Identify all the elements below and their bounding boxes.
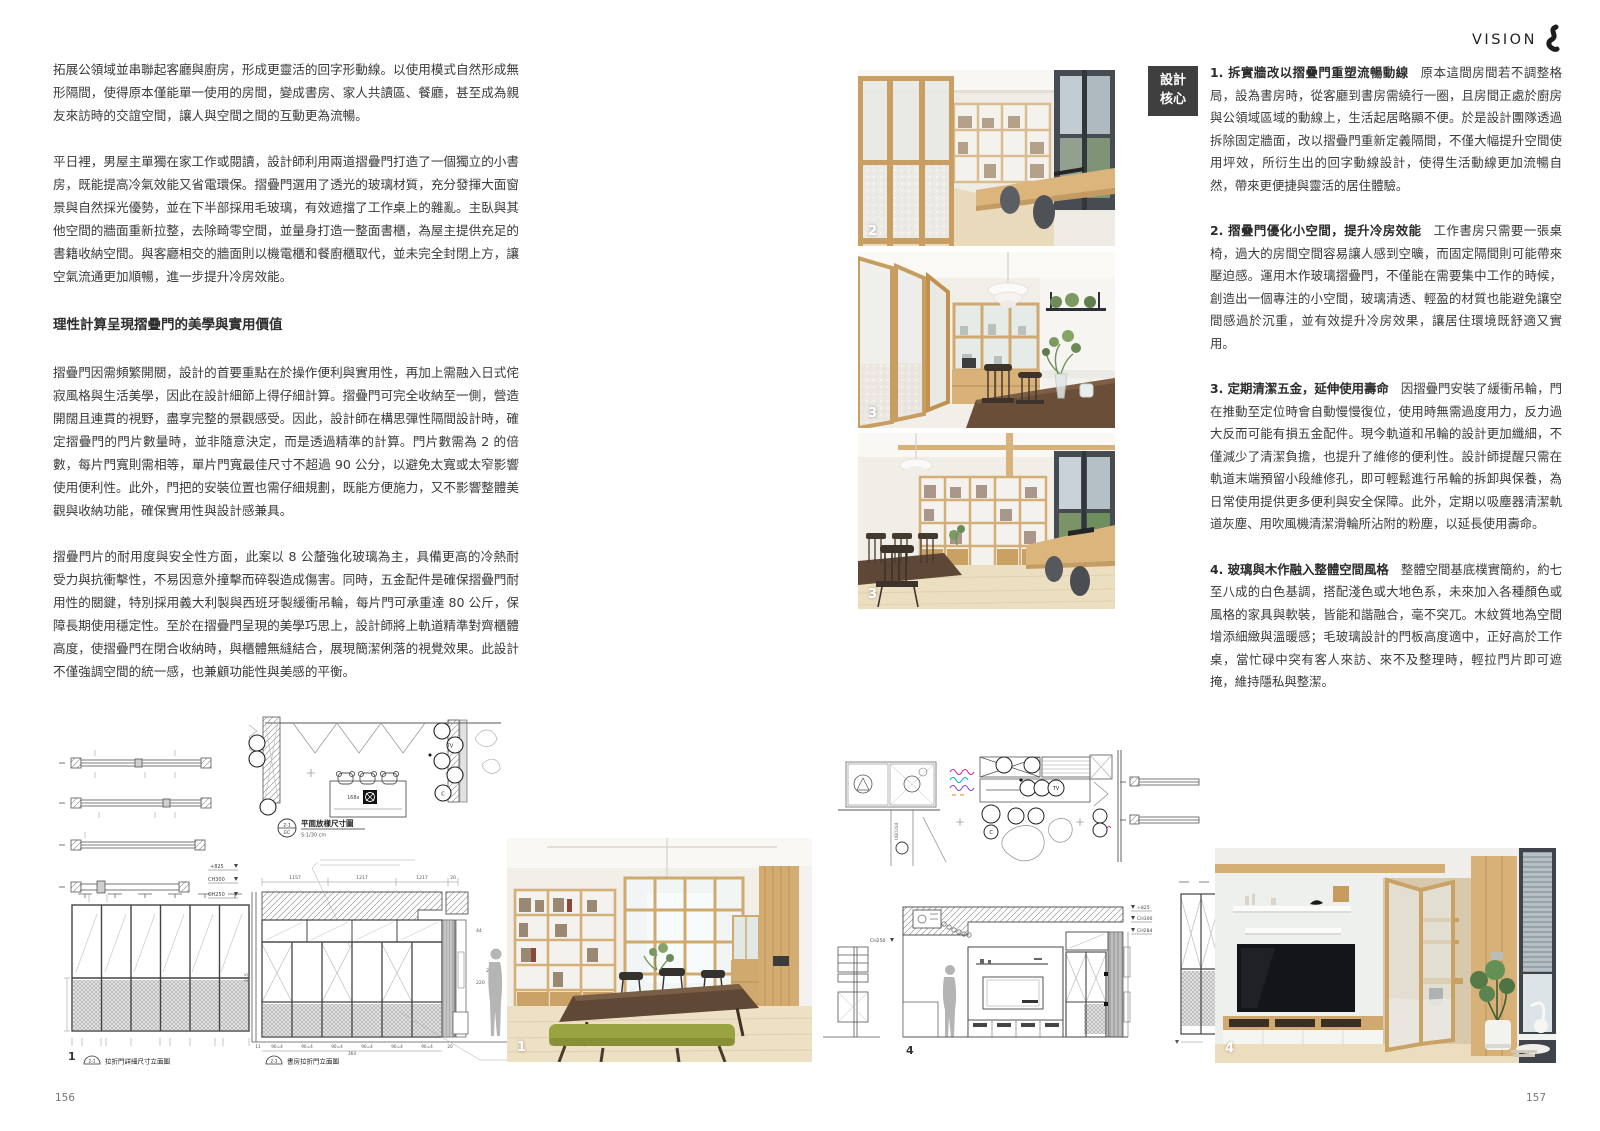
photo-number: 2 [868, 224, 877, 239]
plan-tv-callout: TV [446, 744, 454, 750]
tv-wall-elevation-drawing: CH250 +825 CH300 CH28 [818, 852, 1153, 1062]
svg-text:2-1: 2-1 [283, 823, 291, 829]
design-point-3: 3. 定期清潔五金，延伸使用壽命因摺疊門安裝了緩衝吊輪，門在推動至定位時會自動慢… [1210, 378, 1562, 536]
svg-text:CH250: CH250 [208, 892, 225, 898]
brand: VISION [1472, 24, 1562, 56]
photo-dining-folding-door-image [858, 252, 1115, 428]
design-point-2: 2. 摺疊門優化小空間，提升冷房效能工作書房只需要一張桌椅，過大的房間空間容易讓… [1210, 220, 1562, 355]
svg-text:90=4: 90=4 [421, 1044, 433, 1049]
design-point-1: 1. 拆實牆改以摺疊門重塑流暢動線原本這間房間若不調整格局，設為書房時，從客廳到… [1210, 62, 1562, 197]
intro-paragraph-2: 平日裡，男屋主單獨在家工作或閱讀，設計師利用兩道摺疊門打造了一個獨立的小書房，既… [53, 150, 519, 288]
wall-tag: UB0284 [894, 822, 900, 840]
svg-text:1157: 1157 [289, 875, 301, 881]
photo-living-tv-wall-image [1215, 848, 1556, 1063]
plan-caption: 2-1 EC 平面放樣尺寸圖 S:1/30 cm [278, 818, 365, 839]
study-elevation-caption: 2-1 書房拉折門立面圖 [266, 1056, 339, 1066]
side-cabinet-section [823, 947, 880, 1037]
person-figure [943, 965, 956, 1037]
photo-dining-area: 1 [507, 838, 812, 1062]
brand-glyph-icon [1544, 24, 1562, 56]
svg-text:+825: +825 [1137, 905, 1150, 911]
page-number-right: 157 [1526, 1092, 1546, 1104]
photo-study-room-image [858, 70, 1115, 246]
photo-number: 3 [868, 587, 877, 602]
intro-paragraph-1: 拓展公領域並串聯起客廳與廚房，形成更靈活的回字形動線。以使用模式自然形成無形隔間… [53, 58, 519, 127]
svg-text:拉折門詳細尺寸立面圖: 拉折門詳細尺寸立面圖 [105, 1057, 170, 1066]
elevation-marks: +825 CH300 CH250 [208, 864, 238, 898]
svg-text:1217: 1217 [416, 875, 428, 881]
photo-number: 3 [868, 406, 877, 421]
brand-name: VISION [1472, 32, 1537, 48]
svg-text:90=4: 90=4 [301, 1044, 313, 1049]
svg-text:90=4: 90=4 [391, 1044, 403, 1049]
photo-number: 1 [517, 1040, 526, 1055]
study-folding-door-elevation: +825 CH300 CH250 1157 1217 1217 20 [200, 852, 515, 1067]
svg-text:11: 11 [255, 1044, 261, 1049]
plan-c-callout: C [441, 792, 445, 798]
body-paragraph-1: 摺疊門因需頻繁開關，設計的首要重點在於操作便利與實用性，再加上需融入日式侘寂風格… [53, 361, 519, 522]
figure-number-1: 1 [68, 1050, 76, 1063]
badge-line1: 設計 [1160, 73, 1186, 88]
article-text-column: 拓展公領域並串聯起客廳與廚房，形成更靈活的回字形動線。以使用模式自然形成無形隔間… [53, 58, 519, 706]
svg-text:CH284: CH284 [1137, 928, 1153, 934]
svg-text:2-1: 2-1 [88, 1059, 95, 1065]
photo-open-study-image [858, 433, 1115, 609]
badge-line2: 核心 [1160, 92, 1186, 107]
color-annotations [950, 770, 974, 796]
photo-dining-folding-door: 3 [858, 252, 1115, 428]
design-core-badge: 設計 核心 [1148, 66, 1198, 116]
design-point-4: 4. 玻璃與木作融入整體空間風格整體空間基底樸實簡約，約七至八成的白色基調，搭配… [1210, 559, 1562, 694]
photo-number: 4 [1225, 1041, 1234, 1056]
living-plan-drawing: UB0284 TV C [828, 722, 1128, 870]
svg-text:1217: 1217 [356, 875, 368, 881]
plan-right-tv-callout: TV [1052, 786, 1060, 792]
svg-text:20: 20 [450, 875, 456, 881]
svg-text:364: 364 [348, 1051, 356, 1056]
design-core-column: 1. 拆實牆改以摺疊門重塑流暢動線原本這間房間若不調整格局，設為書房時，從客廳到… [1210, 62, 1562, 717]
photo-study-room: 2 [858, 70, 1115, 246]
elevation-marks-right: +825 CH300 CH284 [1131, 905, 1153, 934]
detail-elevation-caption: 2-1 拉折門詳細尺寸立面圖 [84, 1056, 170, 1066]
svg-text:CH300: CH300 [1137, 916, 1153, 922]
svg-text:S:1/30 cm: S:1/30 cm [301, 833, 326, 839]
page-number-left: 156 [55, 1092, 75, 1104]
svg-text:90=4: 90=4 [361, 1044, 373, 1049]
left-dimension: 215 [244, 973, 250, 982]
figure-number-4: 4 [906, 1044, 914, 1057]
svg-text:20: 20 [447, 1044, 453, 1049]
bottom-dimensions: 11 90=4 90=4 90=4 90=4 90=4 90=4 20 364 [255, 1044, 453, 1056]
plan-table-tag: 168x [347, 795, 360, 801]
svg-text:書房拉折門立面圖: 書房拉折門立面圖 [287, 1057, 339, 1066]
mark-ch250: CH250 [870, 938, 886, 944]
right-dimension-2: 220 [476, 980, 485, 986]
right-dimension-1: 44 [476, 928, 482, 934]
door-section-bars-right [1118, 768, 1203, 846]
svg-text:+825: +825 [210, 864, 224, 870]
svg-text:2-1: 2-1 [270, 1059, 277, 1065]
photo-living-tv-wall: 4 [1215, 848, 1556, 1063]
svg-text:平面放樣尺寸圖: 平面放樣尺寸圖 [301, 818, 354, 828]
svg-text:CH300: CH300 [208, 877, 225, 883]
photo-open-study: 3 [858, 433, 1115, 609]
svg-text:90=4: 90=4 [271, 1044, 283, 1049]
article-subheading: 理性計算呈現摺疊門的美學與實用價值 [53, 314, 519, 337]
photo-dining-area-image [507, 838, 812, 1062]
plan-layout-drawing: 168x TV C 2-1 EC 平面放樣尺寸圖 S:1/30 cm [235, 695, 505, 845]
person-figure [488, 949, 502, 1037]
top-dimensions: 1157 1217 1217 20 [289, 875, 456, 881]
svg-text:90=4: 90=4 [331, 1044, 343, 1049]
svg-text:EC: EC [284, 830, 290, 836]
body-paragraph-2: 摺疊門片的耐用度與安全性方面，此案以 8 公釐強化玻璃為主，具備更高的冷熱耐受力… [53, 545, 519, 683]
